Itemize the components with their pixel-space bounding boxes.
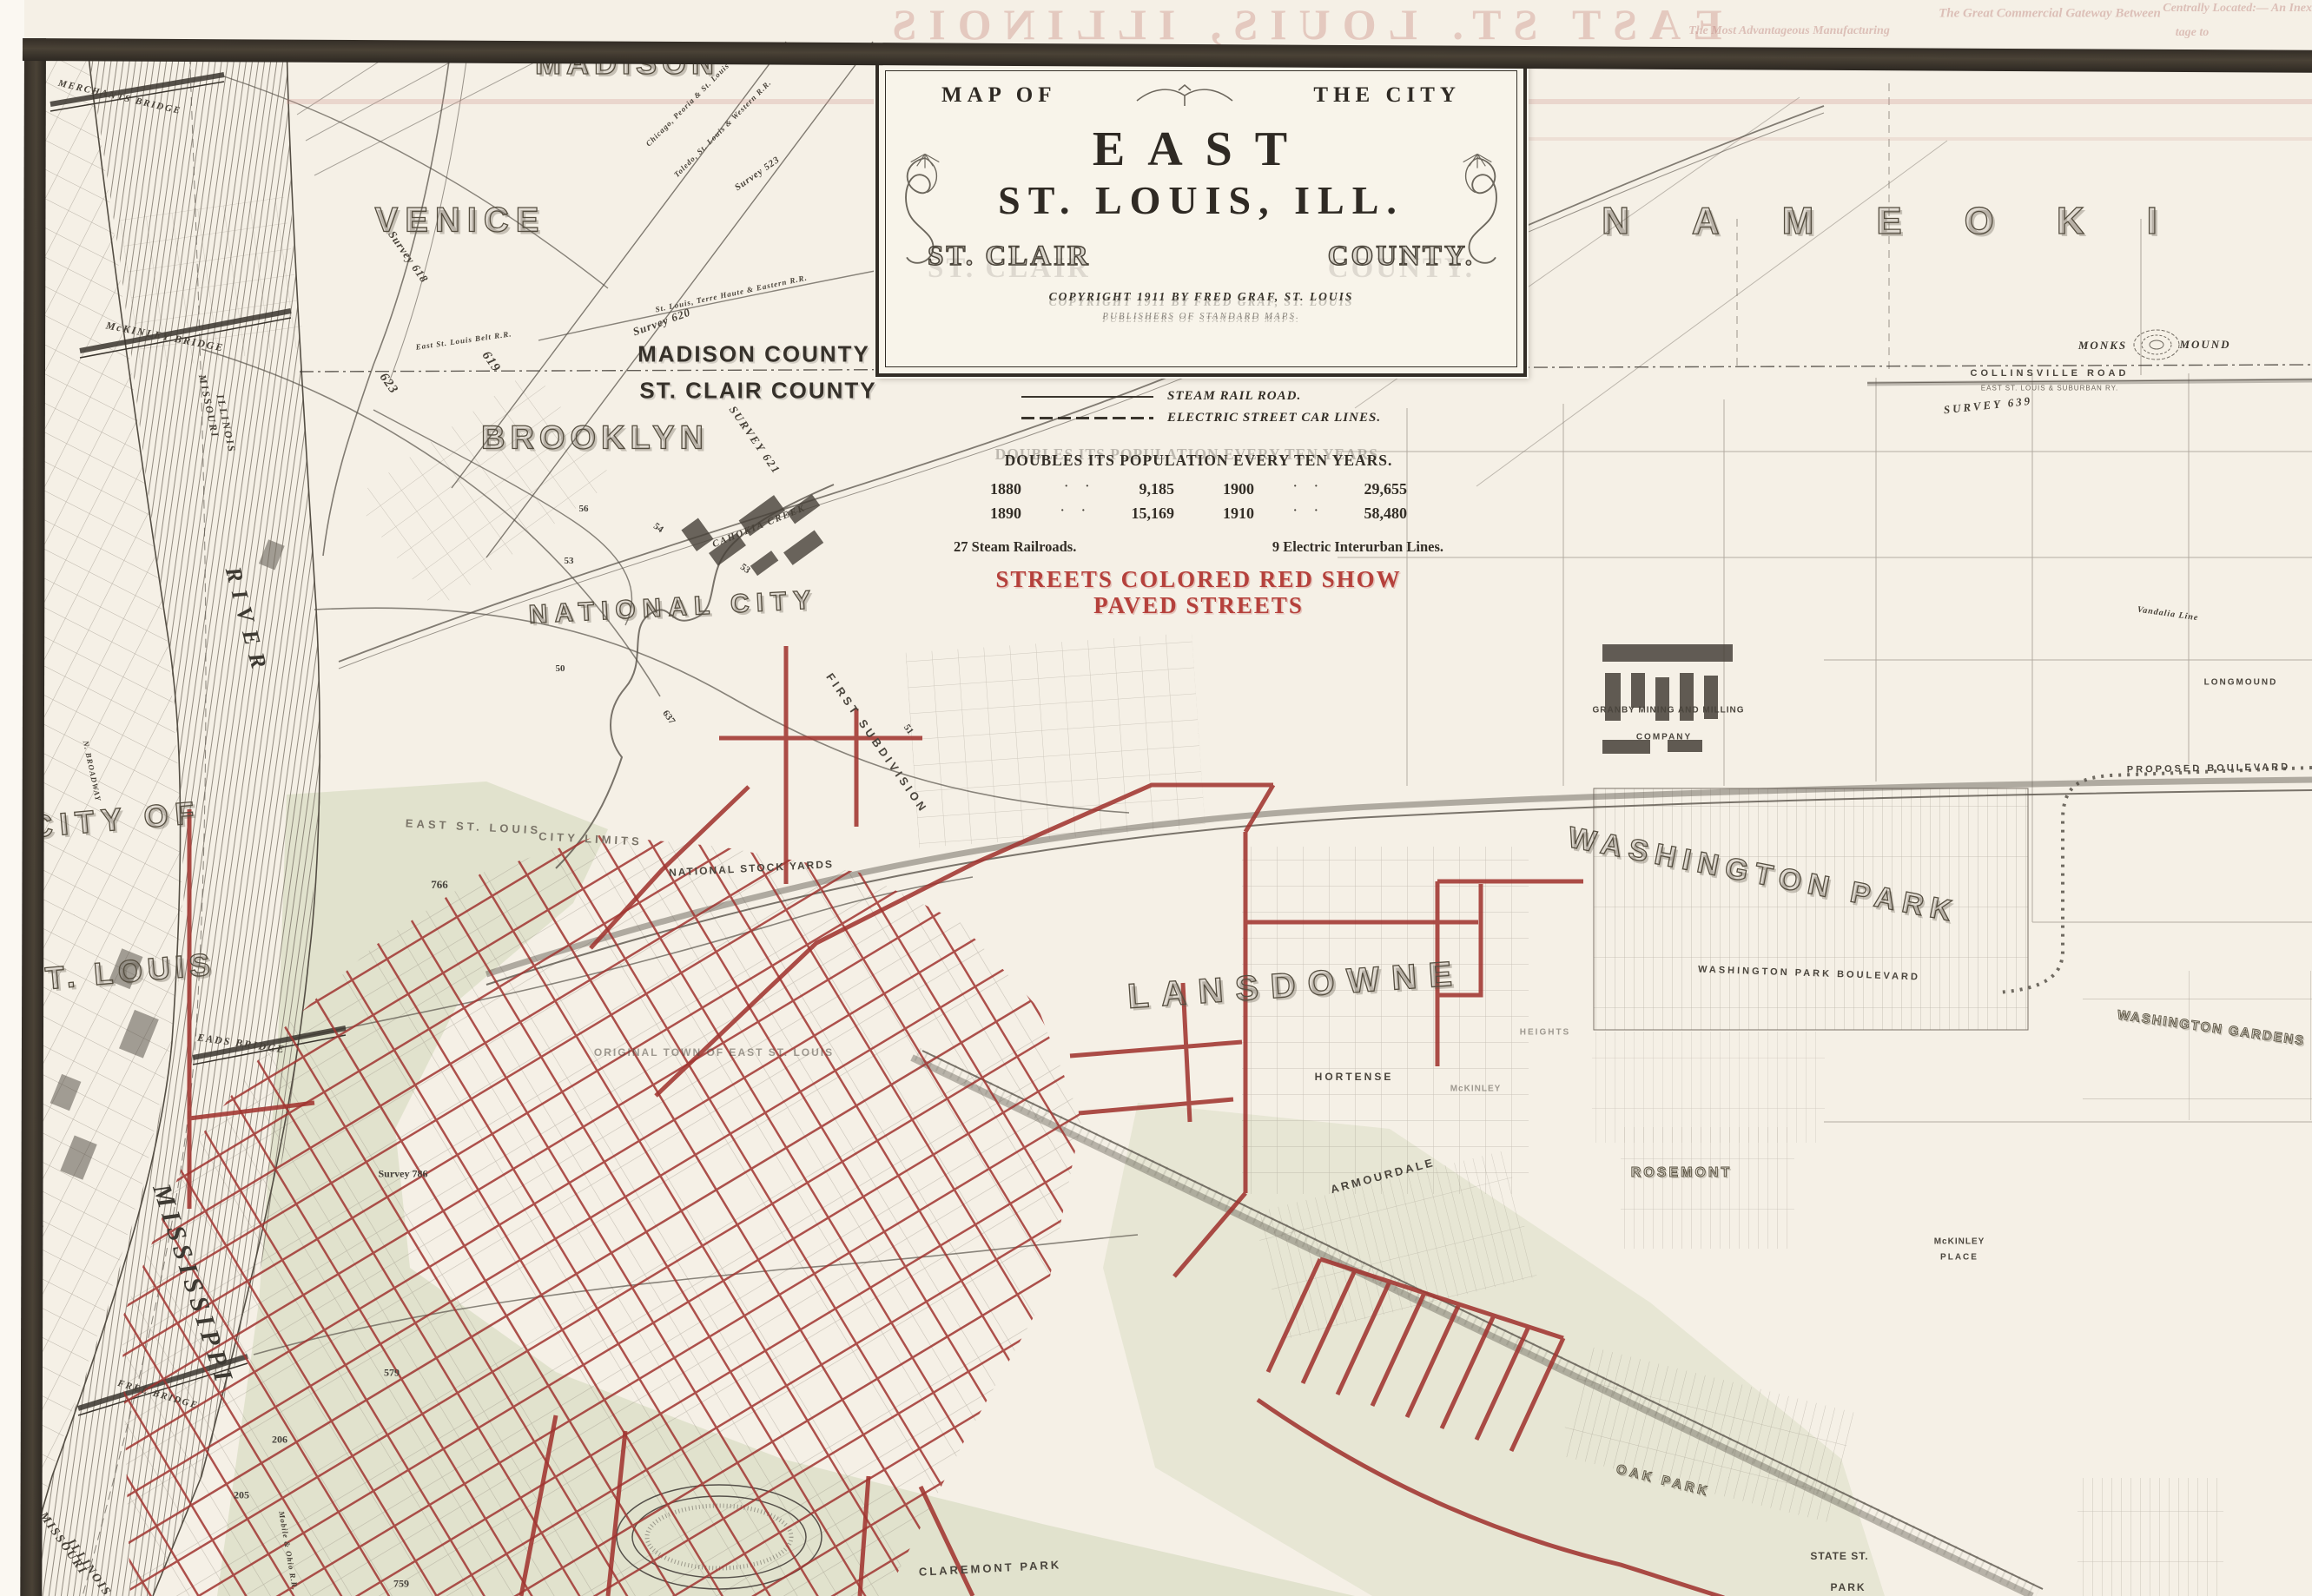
label-lansdowne: LANSDOWNE	[1126, 954, 1465, 1017]
label-survey-619: 619	[479, 349, 504, 376]
label-suburban-ry: EAST ST. LOUIS & SUBURBAN RY.	[1981, 385, 2118, 392]
pop-value: 9,185	[1139, 480, 1175, 498]
steam-railroad-label: STEAM RAIL ROAD.	[1167, 389, 1301, 404]
dot-leader: · ·	[1293, 480, 1325, 498]
cartouche-inner-border: MAP OF THE CITY EAST ST. LOUIS, ILL. ST.…	[885, 70, 1517, 367]
bleed-manufacturing: The Most Advantageous Manufacturing	[1688, 24, 1890, 38]
label-proposed-boulevard: PROPOSED BOULEVARD	[2127, 762, 2290, 775]
label-num-786: Survey 786	[379, 1168, 428, 1181]
bleed-centrally: Centrally Located:— An Inexh	[2163, 2, 2312, 16]
population-row-1880: 1880 · · 9,185	[990, 480, 1174, 498]
label-river: RIVER	[220, 564, 274, 680]
label-mississippi: MISSISSIPPI	[146, 1180, 239, 1389]
label-nameoki: NAMEOKI	[1602, 200, 2220, 243]
label-city-of: CITY OF	[29, 794, 202, 845]
population-row-1890: 1890 · · 15,169	[990, 505, 1174, 523]
label-st-clair-county: ST. CLAIR COUNTY	[639, 378, 876, 405]
label-granby-2: COMPANY	[1636, 733, 1692, 742]
label-free-bridge: FREE BRIDGE	[116, 1378, 200, 1411]
label-rr-belt: East St. Louis Belt R.R.	[415, 329, 512, 351]
label-survey-623: 623	[376, 371, 401, 398]
label-washington-park: WASHINGTON PARK	[1565, 821, 1961, 929]
paved-streets-note: STREETS COLORED RED SHOW PAVED STREETS	[947, 566, 1450, 618]
label-survey-523: Survey 523	[733, 155, 782, 193]
label-num-759: 759	[393, 1578, 409, 1591]
dot-leader: · ·	[1293, 505, 1325, 523]
electric-streetcar-label: ELECTRIC STREET CAR LINES.	[1167, 411, 1381, 425]
label-rr-terre-haute: St. Louis, Terre Haute & Eastern R.R.	[655, 274, 809, 314]
label-claremont: CLAREMONT PARK	[918, 1558, 1061, 1579]
label-state-st: STATE ST.	[1810, 1550, 1868, 1562]
label-city-limits-b: CITY LIMITS	[538, 829, 643, 847]
dot-leader: · ·	[1060, 505, 1093, 523]
cartouche-title-st-louis: ST. LOUIS, ILL.	[886, 177, 1516, 223]
cartouche-map-of: MAP OF	[941, 83, 1057, 108]
electric-interurban-count: 9 Electric Interurban Lines.	[1272, 538, 1443, 556]
label-city-limits-a: EAST ST. LOUIS	[406, 816, 542, 836]
label-eads-bridge: EADS BRIDGE	[196, 1031, 286, 1056]
label-granby-1: GRANBY MINING AND MILLING	[1593, 706, 1745, 716]
label-rosemont: ROSEMONT	[1631, 1165, 1732, 1181]
label-madison-county: MADISON COUNTY	[637, 341, 870, 368]
map-sheet: MADISONVENICEBROOKLYNNATIONAL CITYMADISO…	[0, 0, 2312, 1596]
bleed-title-mirrored: EAST ST. LOUIS, ILLINOIS	[880, 0, 1721, 49]
steam-railroads-count: 27 Steam Railroads.	[954, 538, 1076, 556]
pop-value: 29,655	[1364, 480, 1408, 498]
flourish-left-icon	[895, 122, 955, 304]
label-st-louis: ST. LOUIS	[18, 946, 217, 999]
label-rr-toledo: Toledo, St. Louis & Western R.R.	[672, 78, 773, 179]
electric-streetcar-line-sample	[1021, 417, 1153, 420]
label-num-51: 51	[902, 722, 915, 736]
pop-year: 1900	[1223, 480, 1254, 498]
cartouche-copyright: COPYRIGHT 1911 BY FRED GRAF, ST. LOUIS	[886, 290, 1516, 304]
label-rr-mobile-ohio: Mobile & Ohio R.R.	[277, 1510, 300, 1591]
paved-note-line2: PAVED STREETS	[947, 592, 1450, 618]
label-mound: MOUND	[2179, 338, 2230, 352]
flourish-top-icon	[1128, 83, 1241, 108]
label-monks: MONKS	[2078, 339, 2127, 353]
label-vandalia-line: Vandalia Line	[2137, 605, 2199, 623]
title-cartouche: MAP OF THE CITY EAST ST. LOUIS, ILL. ST.…	[875, 61, 1527, 377]
population-table: 1880 · · 9,185 1890 · · 15,169 1900 · · …	[947, 480, 1450, 523]
label-num-50: 50	[556, 663, 565, 674]
label-collinsville-road: COLLINSVILLE ROAD	[1971, 368, 2130, 379]
dot-leader: · ·	[1064, 480, 1096, 498]
label-first-subdivision: FIRST SUBDIVISION	[823, 670, 930, 815]
label-state-park: PARK	[1830, 1581, 1866, 1593]
pop-year: 1890	[990, 505, 1021, 523]
label-mckinley-place-1: McKINLEY	[1934, 1237, 1985, 1247]
label-num-637: 637	[660, 709, 677, 726]
bleed-tage: tage to	[2176, 26, 2210, 40]
map-legend: STEAM RAIL ROAD. ELECTRIC STREET CAR LIN…	[947, 386, 1450, 618]
population-row-1910: 1910 · · 58,480	[1223, 505, 1407, 523]
label-national-city: NATIONAL CITY	[528, 585, 818, 630]
label-washington-gardens: WASHINGTON GARDENS	[2117, 1007, 2306, 1048]
label-num-205: 205	[234, 1489, 249, 1502]
pop-year: 1910	[1223, 505, 1254, 523]
label-mckinley-place-2: PLACE	[1940, 1253, 1978, 1263]
cartouche-publishers: PUBLISHERS OF STANDARD MAPS.	[886, 311, 1516, 321]
label-survey-639: SURVEY 639	[1943, 394, 2033, 418]
pop-value: 15,169	[1132, 505, 1175, 523]
label-heights: HEIGHTS	[1520, 1028, 1570, 1038]
label-num-579: 579	[384, 1367, 400, 1380]
population-row-1900: 1900 · · 29,655	[1223, 480, 1407, 498]
bleed-gateway: The Great Commercial Gateway Between	[1939, 7, 2161, 22]
label-armourdale: ARMOURDALE	[1329, 1156, 1437, 1197]
label-stock-yards: NATIONAL STOCK YARDS	[669, 858, 835, 879]
steam-railroad-line-sample	[1021, 396, 1153, 398]
flourish-right-icon	[1447, 122, 1508, 304]
label-num-53b: 53	[738, 562, 752, 576]
label-num-54: 54	[651, 521, 665, 535]
label-hortense: HORTENSE	[1315, 1071, 1394, 1083]
paved-note-line1: STREETS COLORED RED SHOW	[947, 566, 1450, 592]
label-original-town: ORIGINAL TOWN OF EAST ST. LOUIS	[594, 1046, 834, 1059]
label-washington-park-blvd: WASHINGTON PARK BOULEVARD	[1698, 965, 1920, 983]
line-counts: 27 Steam Railroads. 9 Electric Interurba…	[947, 538, 1450, 556]
label-num-53a: 53	[565, 556, 574, 566]
cartouche-the-city: THE CITY	[1313, 83, 1461, 108]
label-brooklyn: BROOKLYN	[481, 420, 709, 458]
label-num-56: 56	[579, 504, 589, 514]
label-survey-621: SURVEY 621	[726, 403, 783, 477]
scan-border-left	[20, 38, 46, 1596]
label-cahokia-creek: CAHOKIA CREEK	[710, 503, 807, 550]
label-merchants-bridge: MERCHANTS BRIDGE	[57, 78, 182, 116]
label-longmound: LONGMOUND	[2204, 678, 2278, 688]
label-mckinley-hts: McKINLEY	[1450, 1085, 1502, 1094]
cartouche-title-east: EAST	[886, 122, 1516, 177]
pop-value: 58,480	[1364, 505, 1408, 523]
label-num-206: 206	[272, 1434, 287, 1447]
label-oak-park: OAK PARK	[1615, 1461, 1712, 1499]
label-num-766: 766	[431, 878, 448, 892]
label-n-broadway: N. BROADWAY	[82, 740, 103, 802]
pop-year: 1880	[990, 480, 1021, 498]
population-heading: DOUBLES ITS POPULATION EVERY TEN YEARS.	[947, 452, 1450, 470]
label-mckinley-bridge: McKINLEY BRIDGE	[105, 319, 226, 354]
